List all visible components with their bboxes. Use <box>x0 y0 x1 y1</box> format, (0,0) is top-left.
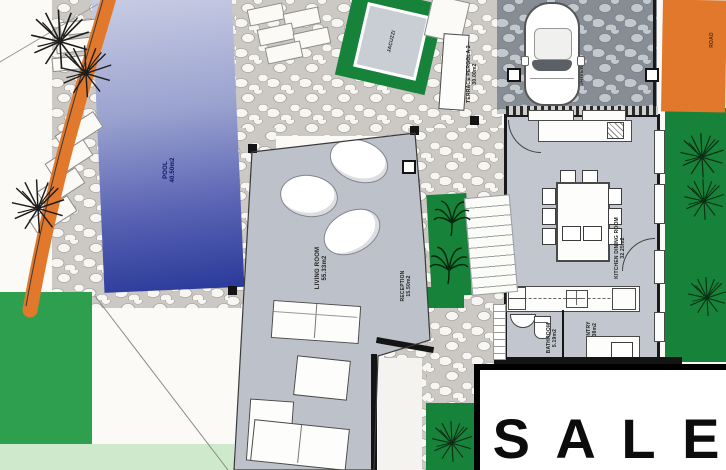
dining-table <box>556 182 610 262</box>
table-setting <box>583 226 602 241</box>
dining-chair <box>608 228 622 245</box>
toilet-tank-line <box>535 322 548 323</box>
jacuzzi-label: JACUZZI <box>386 30 397 53</box>
l-sofa-horizontal <box>250 419 350 470</box>
gate-post-marker <box>645 68 659 82</box>
sofa <box>271 300 361 344</box>
column-marker <box>402 160 416 174</box>
house-bottom-wall <box>494 357 682 364</box>
terrace-white-strip <box>378 358 422 470</box>
car-hood-line <box>530 78 574 79</box>
swimming-pool <box>92 0 245 293</box>
dining-chair <box>608 208 622 225</box>
lounge-oval <box>324 131 395 191</box>
palm-tree-sketch <box>432 196 472 240</box>
living-room-label: LIVING ROOM 55.33m2 <box>315 247 329 290</box>
terrace-wall-vertical <box>371 354 377 470</box>
jacuzzi-deck: JACUZZI <box>353 2 430 81</box>
site-plan: JACUZZI ROAD POOL 40.50m2 TERRACE PERGOL… <box>0 0 726 470</box>
dining-chair <box>542 228 556 245</box>
sink-cross-h <box>567 298 585 299</box>
lawn-mid-square <box>427 287 464 308</box>
sale-sign-text: S A L E <box>493 406 726 470</box>
partition-wall <box>562 310 564 360</box>
appliance <box>612 288 636 310</box>
table-setting <box>562 226 581 241</box>
tree-sketch <box>678 130 726 182</box>
pergola-terrace <box>438 33 469 111</box>
gate-post-marker <box>507 68 521 82</box>
car-mirror-left <box>521 56 529 66</box>
column-marker <box>228 286 237 295</box>
tree-sketch <box>686 272 726 322</box>
window <box>654 130 665 174</box>
sofa-seam <box>314 304 317 338</box>
column-marker <box>470 116 479 125</box>
lounge-oval <box>277 171 340 221</box>
tree-sketch <box>682 176 726 224</box>
dining-chair <box>542 188 556 205</box>
car-mirror-right <box>577 56 585 66</box>
lawn-bottom-pale-band <box>0 444 234 470</box>
car <box>524 2 580 106</box>
road-strip-right <box>661 0 726 113</box>
dining-chair <box>608 188 622 205</box>
window <box>654 250 665 284</box>
sale-sign: S A L E <box>474 364 726 470</box>
column-marker <box>248 144 257 153</box>
sofa-seam <box>297 425 302 463</box>
tree-sketch <box>430 416 474 468</box>
side-steps <box>493 304 506 360</box>
tree-sketch <box>58 44 114 100</box>
car-roof <box>534 28 572 60</box>
window <box>654 184 665 224</box>
toilet <box>534 316 551 339</box>
coffee-table <box>293 355 351 400</box>
window <box>654 312 665 342</box>
palm-tree-sketch <box>428 240 470 290</box>
car-windshield <box>532 60 572 71</box>
column-marker <box>410 126 419 135</box>
tree-sketch <box>8 178 68 236</box>
dining-chair <box>542 208 556 225</box>
hob-symbol <box>607 122 624 139</box>
sink <box>566 290 588 308</box>
appliance <box>508 298 526 310</box>
pantry-bench-item <box>611 342 633 358</box>
plot-boundary-right <box>653 0 656 114</box>
